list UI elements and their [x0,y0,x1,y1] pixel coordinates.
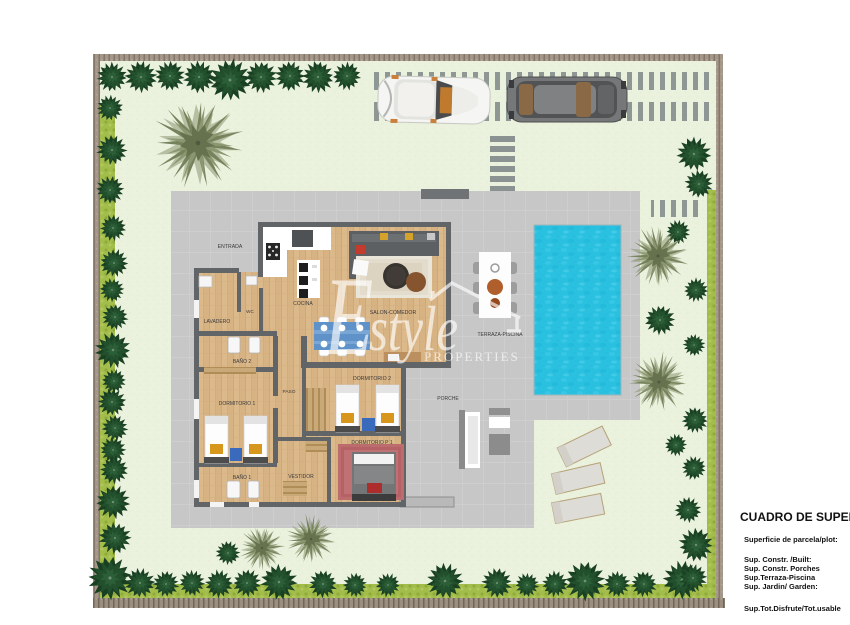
svg-text:LAVADERO: LAVADERO [204,319,231,325]
svg-text:BAÑO 2: BAÑO 2 [233,358,252,365]
svg-text:PROPERTIES: PROPERTIES [424,349,520,364]
svg-text:Sup.Terraza-Piscina: Sup.Terraza-Piscina [744,573,816,582]
svg-text:E: E [322,255,373,379]
svg-text:DORMITORIO P 1: DORMITORIO P 1 [351,440,392,446]
svg-text:Sup. Constr. Porches: Sup. Constr. Porches [744,564,820,573]
svg-text:PORCHE: PORCHE [437,396,459,402]
svg-text:Sup. Constr. /Built:: Sup. Constr. /Built: [744,555,812,564]
svg-text:DORMITORIO 1: DORMITORIO 1 [219,401,256,407]
svg-text:BAÑO 1: BAÑO 1 [233,474,252,481]
svg-text:COCINA: COCINA [293,301,313,307]
svg-text:PASO: PASO [283,389,296,395]
svg-text:TERRAZA-PISCINA: TERRAZA-PISCINA [477,332,523,338]
svg-text:Superficie de parcela/plot:: Superficie de parcela/plot: [744,535,838,544]
svg-text:WC: WC [246,309,254,314]
svg-text:VESTIDOR: VESTIDOR [288,474,314,480]
svg-text:Sup.Tot.Disfrute/Tot.usable: Sup.Tot.Disfrute/Tot.usable [744,604,841,613]
svg-text:Sup. Jardin/ Garden:: Sup. Jardin/ Garden: [744,582,818,591]
svg-text:ENTRADA: ENTRADA [218,244,243,250]
svg-text:CUADRO DE SUPERF: CUADRO DE SUPERF [740,510,850,524]
